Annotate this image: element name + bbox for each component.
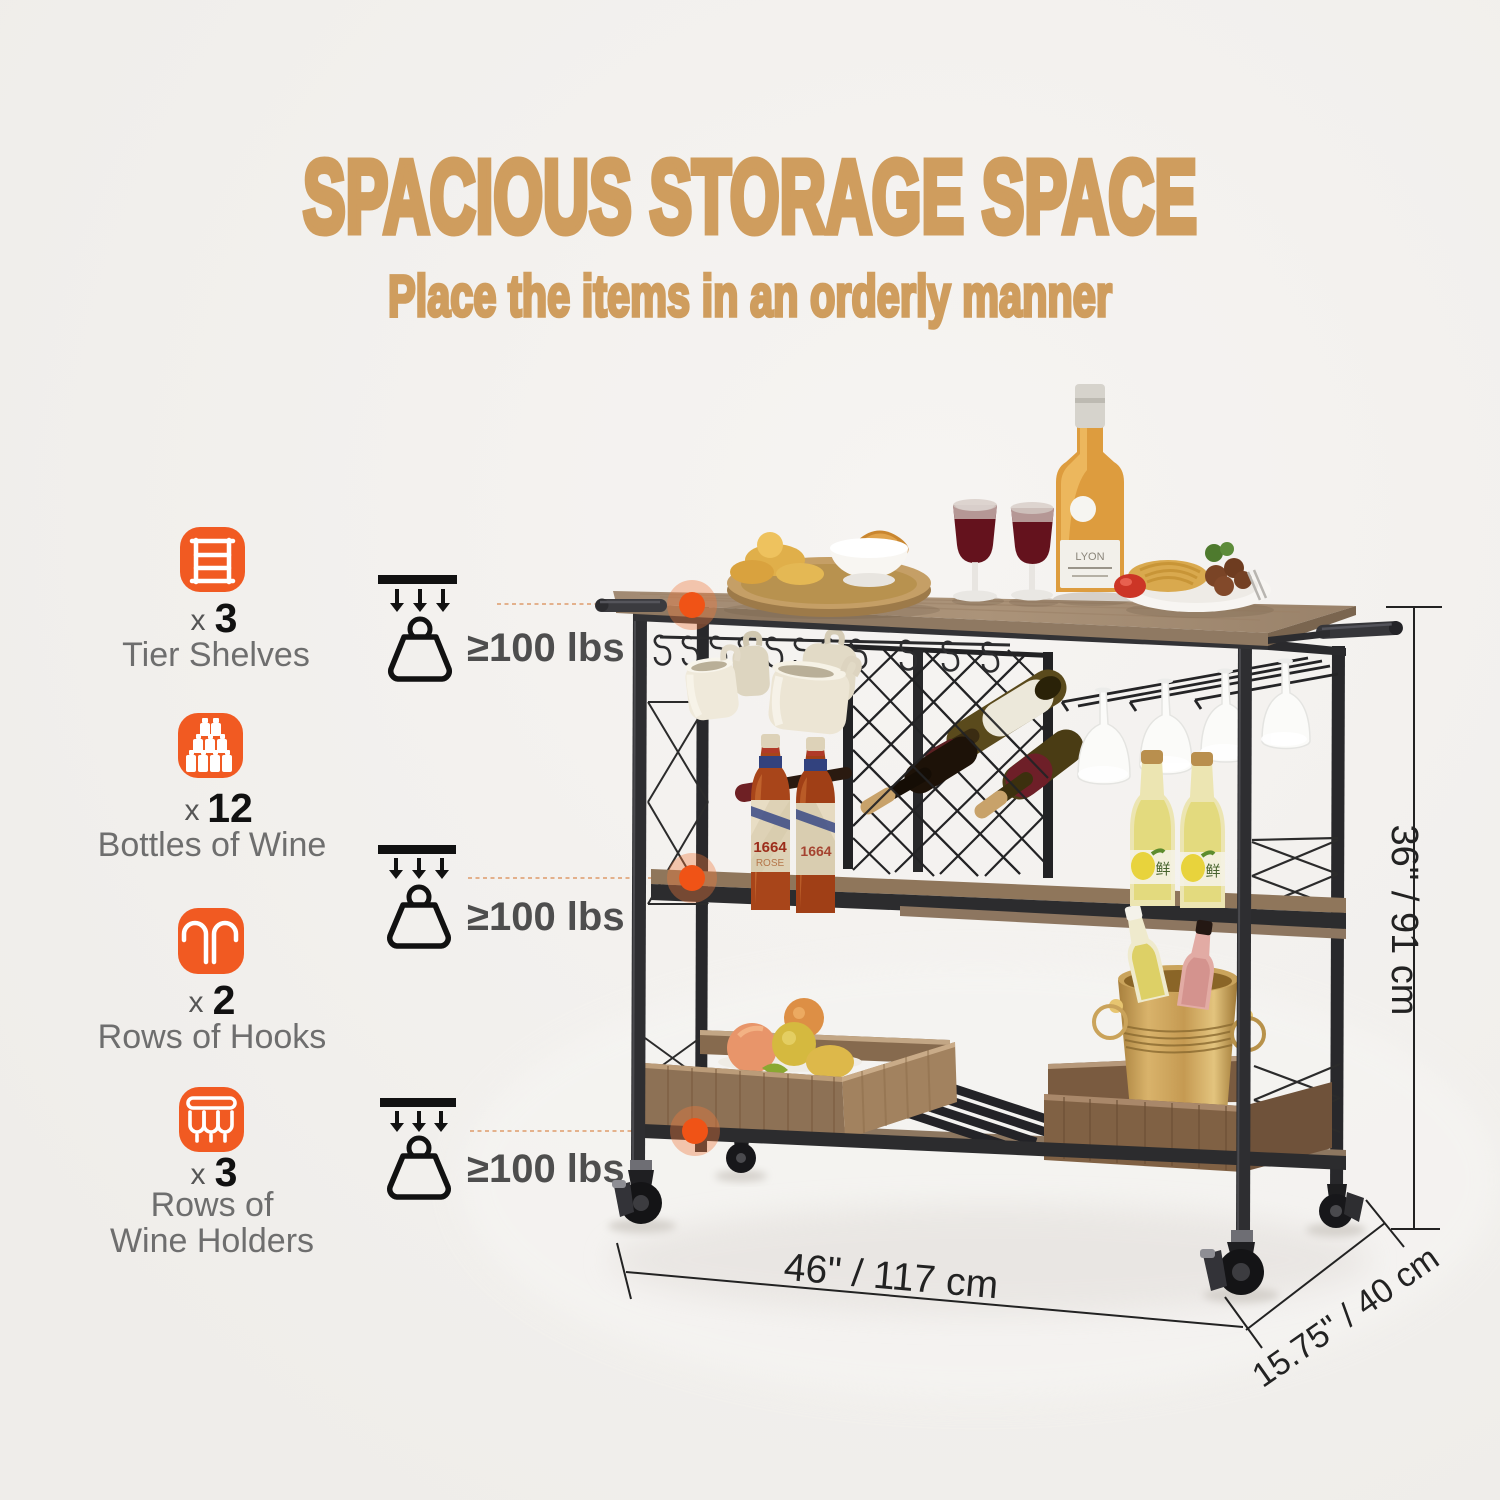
svg-text:Tier Shelves: Tier Shelves (122, 636, 310, 674)
svg-text:鲜: 鲜 (1155, 861, 1170, 878)
svg-text:鲜: 鲜 (1205, 863, 1220, 880)
svg-text:1664: 1664 (800, 843, 831, 859)
svg-text:SPACIOUS STORAGE SPACE: SPACIOUS STORAGE SPACE (303, 139, 1197, 254)
svg-text:≥100 lbs: ≥100 lbs (467, 895, 625, 939)
svg-text:12: 12 (207, 785, 253, 831)
svg-text:1664: 1664 (753, 839, 787, 856)
svg-text:x: x (185, 794, 200, 827)
svg-text:Wine Holders: Wine Holders (110, 1222, 314, 1260)
svg-text:x: x (189, 986, 204, 1019)
svg-text:LYON: LYON (1075, 551, 1104, 563)
svg-text:Rows of: Rows of (151, 1186, 274, 1224)
svg-text:≥100 lbs: ≥100 lbs (467, 1147, 625, 1191)
svg-text:Rows of Hooks: Rows of Hooks (98, 1018, 327, 1056)
svg-text:x: x (191, 604, 206, 637)
svg-text:3: 3 (215, 595, 238, 641)
svg-text:≥100 lbs: ≥100 lbs (467, 626, 625, 670)
svg-text:ROSE: ROSE (756, 858, 785, 869)
svg-text:Place the items in an orderly: Place the items in an orderly manner (388, 264, 1112, 329)
svg-text:36" / 91 cm: 36" / 91 cm (1383, 825, 1425, 1016)
svg-text:Bottles of Wine: Bottles of Wine (98, 826, 327, 864)
svg-text:2: 2 (213, 977, 236, 1023)
